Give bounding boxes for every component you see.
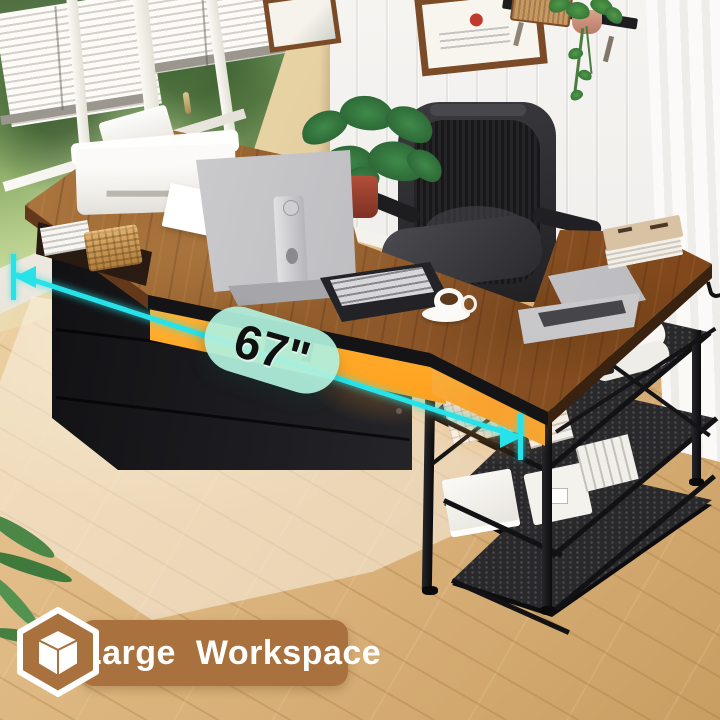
arrow-left-icon <box>14 266 36 288</box>
leg-foot <box>422 586 438 595</box>
feature-banner-label: Large Workspace <box>81 634 381 673</box>
leg-foot <box>540 606 556 615</box>
coffee <box>440 293 458 305</box>
arrow-right-icon <box>500 426 522 448</box>
cup-handle <box>461 295 477 313</box>
leg-foot <box>689 478 704 486</box>
certificate-text-lines <box>439 26 510 51</box>
cube-3d-icon <box>14 606 102 698</box>
drawer-pull <box>396 408 402 414</box>
desk-leg <box>692 330 701 482</box>
feature-banner: Large Workspace <box>80 620 348 686</box>
certificate-seal <box>469 13 483 27</box>
office-chair-headrest <box>430 104 526 116</box>
product-photo: 67" Large Workspace <box>0 0 720 720</box>
monitor-logo <box>283 200 299 216</box>
